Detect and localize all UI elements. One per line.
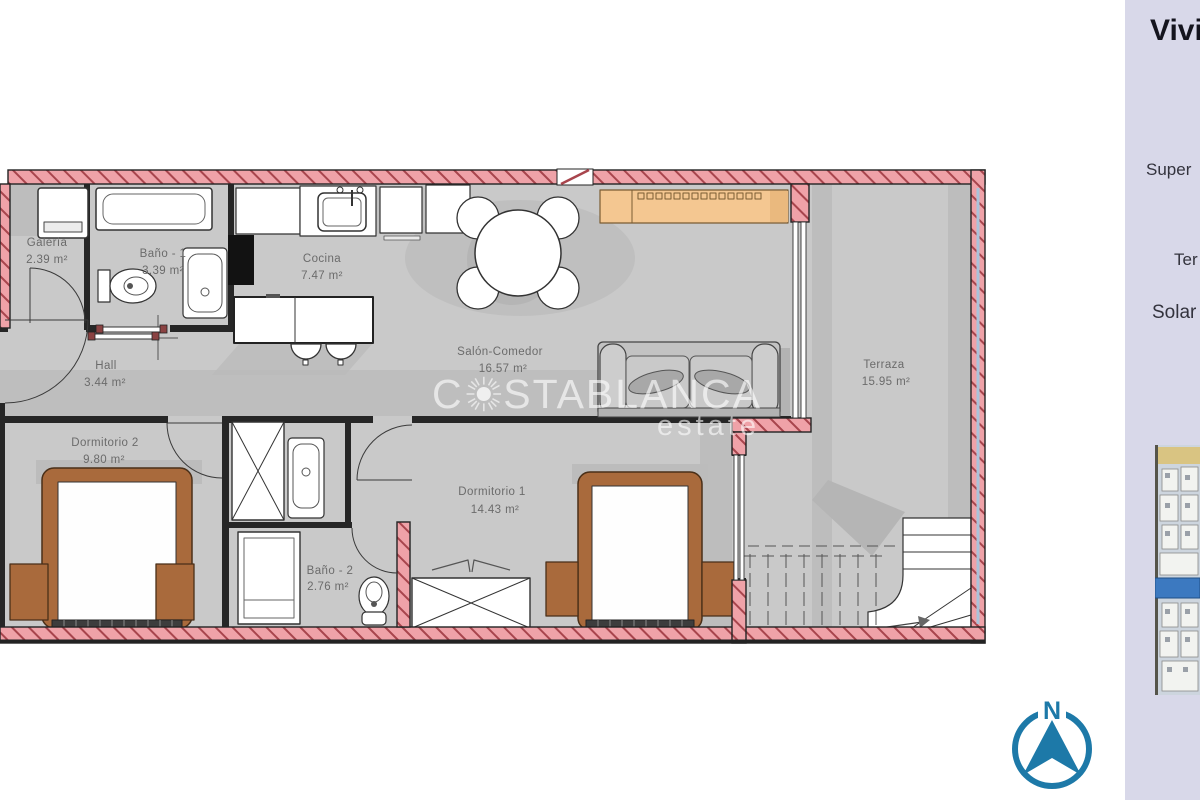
room-label-dormitorio2: Dormitorio 2	[71, 437, 138, 449]
shower	[238, 532, 300, 624]
closet	[232, 422, 284, 520]
room-label-galeria: Galería	[27, 237, 68, 249]
room-label-terraza: Terraza	[863, 359, 904, 371]
panel-label-terraza: Ter	[1174, 250, 1198, 270]
page: { "plan": { "rooms": [ {"id":"galeria","…	[0, 0, 1200, 800]
north-arrow-icon	[1023, 720, 1081, 775]
room-area-dormitorio1: 14.43 m²	[471, 504, 520, 516]
room-area-galeria: 2.39 m²	[26, 254, 68, 266]
panel-label-solarium: Solar	[1152, 302, 1196, 324]
floor-plan: Galería 2.39 m² Baño - 1 3.39 m² Cocina …	[0, 160, 1000, 650]
room-area-cocina: 7.47 m²	[301, 270, 343, 282]
room-label-bano1: Baño - 1	[140, 248, 187, 260]
panel-title: Vivi	[1150, 14, 1200, 48]
north-compass: N	[1005, 692, 1100, 792]
sideboard	[600, 190, 788, 223]
room-area-bano2: 2.76 m²	[307, 581, 349, 593]
room-label-cocina: Cocina	[303, 253, 341, 265]
room-label-dormitorio1: Dormitorio 1	[458, 486, 525, 498]
toilet-2	[359, 577, 389, 625]
washbasin-1	[183, 248, 227, 318]
sofa	[598, 342, 780, 417]
room-area-dormitorio2: 9.80 m²	[83, 454, 125, 466]
info-panel: Vivi Super Ter Solar	[1125, 0, 1200, 800]
room-label-salon: Salón-Comedor	[457, 346, 543, 358]
site-plan-thumbnail	[1155, 445, 1200, 695]
room-area-salon: 16.57 m²	[479, 363, 528, 375]
washbasin-2	[288, 438, 324, 518]
panel-label-superficie: Super	[1146, 160, 1191, 180]
room-label-hall: Hall	[95, 360, 116, 372]
nightstand	[702, 562, 734, 616]
room-label-bano2: Baño - 2	[307, 565, 354, 577]
top-wall-door	[557, 169, 593, 185]
nightstand	[546, 562, 578, 616]
nightstand	[10, 564, 48, 620]
dining-table	[457, 197, 579, 309]
room-area-bano1: 3.39 m²	[142, 265, 184, 277]
thumbnail-blue-band	[1155, 578, 1200, 598]
room-area-terraza: 15.95 m²	[862, 376, 911, 388]
room-area-hall: 3.44 m²	[84, 377, 126, 389]
kitchen-counter	[236, 185, 470, 240]
nightstand	[156, 564, 194, 620]
sliding-door	[88, 325, 167, 340]
